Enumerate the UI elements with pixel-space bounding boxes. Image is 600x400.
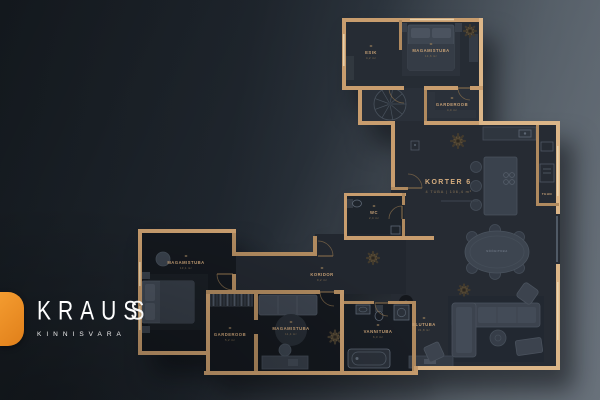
- room-area: 4,2 m²: [366, 56, 376, 60]
- plant-pot: [462, 288, 466, 292]
- room-area: 5,2 m²: [225, 338, 235, 342]
- room-name: MAGAMISTUBA: [167, 260, 204, 265]
- label-mark: [370, 45, 372, 46]
- room-area: 11,4 m²: [285, 332, 297, 336]
- kraus-logo-icon: [0, 292, 24, 346]
- washer: [394, 305, 409, 320]
- wall: [344, 301, 374, 304]
- kraus-logo: KRAUSS KINNISVARA: [0, 292, 151, 346]
- coffee-table: [490, 330, 506, 346]
- wall: [424, 90, 427, 121]
- wall: [358, 121, 395, 125]
- sofa-cushion: [478, 307, 536, 323]
- pillow: [432, 28, 451, 38]
- room-name: GARDEROOB: [214, 332, 246, 337]
- label-mark: [423, 317, 425, 318]
- nightstand: [455, 23, 462, 32]
- wall: [344, 236, 434, 240]
- window-marker: [410, 19, 454, 21]
- wall: [470, 86, 483, 90]
- wall: [344, 193, 406, 196]
- window-marker: [139, 262, 141, 286]
- room-area: 2,4 m²: [369, 216, 379, 220]
- wall: [536, 125, 539, 205]
- dresser: [469, 34, 478, 62]
- laptop: [288, 359, 298, 366]
- wall: [232, 233, 236, 256]
- wall: [479, 18, 483, 125]
- plant-icon: [329, 331, 342, 344]
- plant-icon: [367, 252, 379, 264]
- cabinet: [346, 56, 354, 80]
- floorplan: MAGAMISTUBA14,6 m²ESIK4,2 m²GARDEROOB4,0…: [138, 18, 560, 375]
- kraus-logo-text: KRAUSS KINNISVARA: [37, 300, 151, 338]
- label-mark: [229, 327, 231, 328]
- wall: [391, 187, 408, 190]
- wall: [232, 274, 236, 290]
- kitchen-island: [484, 157, 517, 215]
- room-label: SÖÖGITUBA: [486, 248, 507, 253]
- brand-tagline: KINNISVARA: [37, 331, 151, 338]
- label-mark: [430, 43, 432, 44]
- sofa-cushion: [456, 307, 472, 353]
- plant-pot: [371, 256, 375, 260]
- scene: MAGAMISTUBA14,6 m²ESIK4,2 m²GARDEROOB4,0…: [0, 0, 600, 400]
- sink: [356, 305, 370, 314]
- plant-pot: [456, 139, 460, 143]
- label-mark: [377, 324, 379, 325]
- plan-subtitle: 4 TUBA | 106,4 m²: [426, 190, 472, 194]
- window-marker: [557, 282, 559, 340]
- wall: [206, 290, 210, 375]
- stair-post: [388, 102, 392, 106]
- wall: [536, 203, 559, 206]
- wall: [206, 290, 258, 294]
- plant-icon: [459, 285, 470, 296]
- brand-double-s: S: [130, 297, 151, 328]
- label-mark: [290, 321, 292, 322]
- room-area: 14,6 m²: [425, 54, 437, 58]
- wall: [254, 290, 258, 320]
- desk-chair: [279, 344, 291, 356]
- wall: [138, 229, 236, 233]
- label-mark: [451, 97, 453, 98]
- faucet: [524, 132, 526, 134]
- drain: [356, 357, 359, 360]
- bar-stool: [471, 162, 482, 173]
- room-area: 4,0 m²: [447, 108, 457, 112]
- room-name: TEHN: [542, 192, 552, 196]
- room-name: MAGAMISTUBA: [412, 48, 449, 53]
- wall: [414, 366, 418, 375]
- window-marker: [343, 34, 345, 66]
- wall: [138, 351, 210, 355]
- pillow: [411, 28, 430, 38]
- wall: [391, 121, 395, 190]
- wall: [479, 121, 560, 125]
- room-name: MAGAMISTUBA: [272, 326, 309, 331]
- nightstand: [141, 272, 150, 279]
- wall: [388, 301, 416, 304]
- daybed: [259, 295, 317, 315]
- label-mark: [321, 267, 323, 268]
- window-marker: [557, 146, 559, 196]
- room-name: KORIDOR: [310, 272, 333, 277]
- plant-icon: [464, 25, 476, 37]
- wall: [424, 86, 458, 90]
- desk: [262, 356, 308, 369]
- wall: [358, 88, 362, 125]
- wall: [313, 236, 317, 256]
- room-area: 31,8 m²: [418, 328, 430, 332]
- wall: [344, 193, 347, 240]
- room-floor: [315, 234, 406, 294]
- blanket: [160, 281, 194, 323]
- room-name: ESIK: [365, 50, 377, 55]
- brand-name: KRAUSS: [37, 297, 151, 328]
- wall: [416, 366, 560, 370]
- room-label: TEHN: [542, 192, 552, 196]
- room-name: SÖÖGITUBA: [486, 248, 507, 253]
- plant-pot: [333, 335, 337, 339]
- room-name: GARDEROOB: [436, 102, 468, 107]
- room-area: 6,3 m²: [373, 335, 383, 339]
- bar-stool: [471, 181, 482, 192]
- plant-icon: [451, 134, 465, 148]
- wall: [402, 193, 405, 205]
- wall: [362, 86, 404, 90]
- plan-title: KORTER 6: [425, 179, 472, 186]
- room-name: ELUTUBA: [412, 322, 436, 327]
- wall: [399, 20, 402, 50]
- room-area: 9,2 m²: [317, 278, 327, 282]
- ottoman: [515, 337, 543, 355]
- room-name: WC: [370, 210, 378, 215]
- wall: [412, 301, 416, 375]
- wall: [424, 121, 482, 125]
- room-area: 13,1 m²: [180, 266, 192, 270]
- plant-pot: [468, 29, 472, 33]
- wall: [258, 290, 320, 294]
- kitchen-counter: [483, 127, 536, 140]
- room-name: VANNITUBA: [364, 329, 393, 334]
- wall: [232, 252, 317, 256]
- label-mark: [185, 255, 187, 256]
- wall: [204, 371, 418, 375]
- label-mark: [373, 205, 375, 206]
- wall: [340, 290, 344, 375]
- panel-dot: [414, 144, 416, 146]
- wall: [254, 334, 258, 375]
